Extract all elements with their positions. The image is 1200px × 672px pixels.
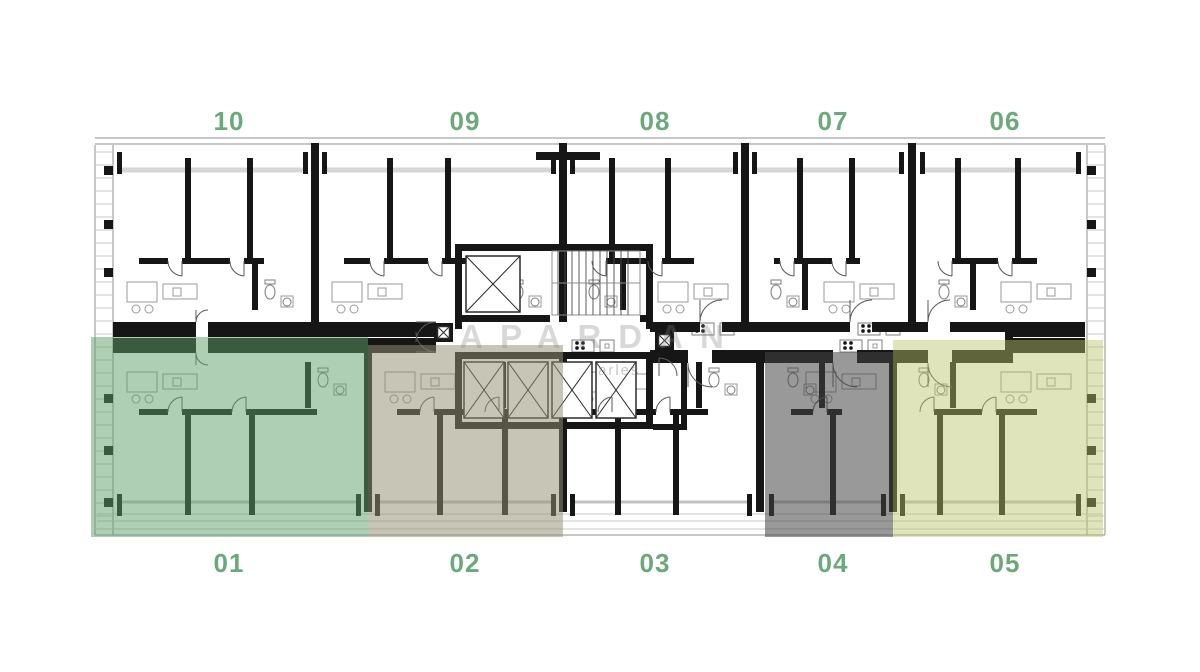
unit-label-05: 05 bbox=[990, 548, 1021, 579]
unit-label-04: 04 bbox=[818, 548, 849, 579]
unit-label-01: 01 bbox=[214, 548, 245, 579]
unit-overlay-05[interactable] bbox=[893, 340, 1103, 537]
unit-label-09: 09 bbox=[450, 106, 481, 137]
unit-overlay-04[interactable] bbox=[765, 352, 893, 537]
unit-label-07: 07 bbox=[818, 106, 849, 137]
unit-label-06: 06 bbox=[990, 106, 1021, 137]
unit-overlay-01[interactable] bbox=[91, 337, 368, 537]
unit-label-02: 02 bbox=[450, 548, 481, 579]
unit-label-10: 10 bbox=[214, 106, 245, 137]
unit-overlay-02[interactable] bbox=[368, 345, 563, 537]
unit-label-08: 08 bbox=[640, 106, 671, 137]
unit-label-03: 03 bbox=[640, 548, 671, 579]
floor-plan-page: APARDAN arles 10 09 08 07 06 01 02 03 04… bbox=[0, 0, 1200, 672]
